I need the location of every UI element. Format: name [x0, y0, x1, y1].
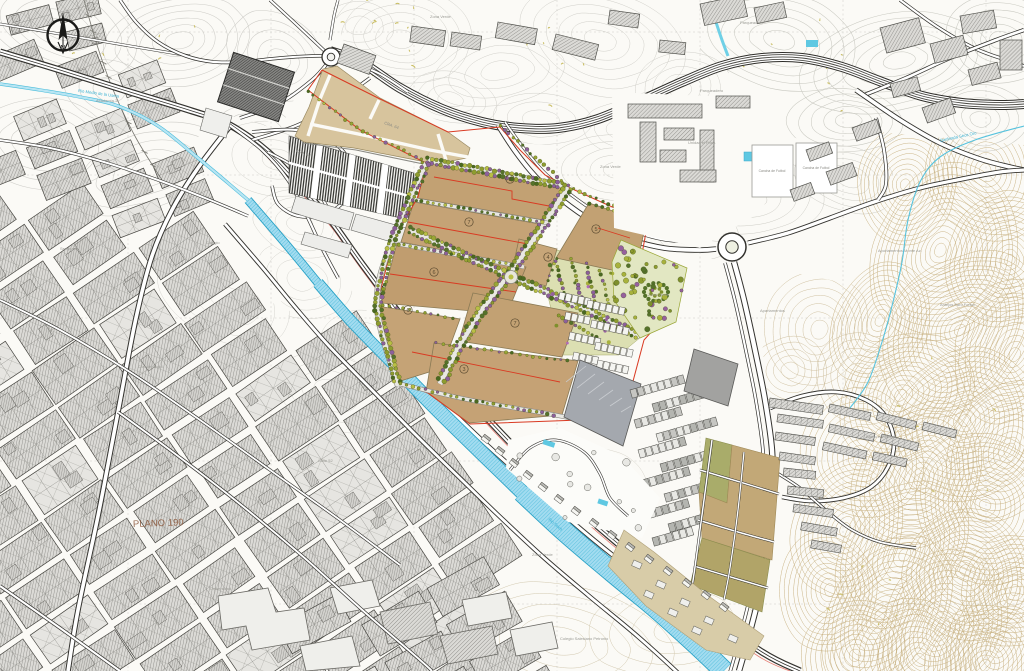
svg-text:6: 6 — [406, 308, 409, 314]
svg-text:PLANO 190: PLANO 190 — [133, 517, 184, 530]
svg-text:Barrio el Refugio: Barrio el Refugio — [866, 434, 897, 439]
svg-text:Zona Verde: Zona Verde — [648, 292, 669, 297]
svg-text:Zona Verde: Zona Verde — [532, 552, 553, 557]
svg-text:7: 7 — [513, 321, 516, 327]
svg-text:Aportamentos Monte Az.: Aportamentos Monte Az. — [878, 248, 922, 253]
svg-text:Parqueadero: Parqueadero — [740, 20, 764, 25]
svg-text:N: N — [60, 45, 65, 52]
svg-text:8: 8 — [508, 177, 511, 183]
svg-text:7: 7 — [467, 220, 470, 226]
svg-text:Calle 52: Calle 52 — [318, 458, 333, 463]
svg-text:6: 6 — [432, 270, 435, 276]
svg-text:Apartamentos: Apartamentos — [760, 308, 785, 313]
svg-text:Colegio: Colegio — [206, 240, 220, 245]
svg-text:Parqueadero: Parqueadero — [700, 88, 724, 93]
svg-text:Cancha de Futbol: Cancha de Futbol — [803, 166, 830, 170]
svg-text:Zona Verde: Zona Verde — [430, 14, 451, 19]
svg-text:3: 3 — [462, 367, 465, 373]
svg-text:Academia T.: Academia T. — [96, 98, 118, 103]
svg-text:Seminario: Seminario — [60, 246, 79, 251]
svg-text:Unidad el Princ.: Unidad el Princ. — [688, 140, 716, 145]
svg-text:5: 5 — [594, 227, 597, 233]
svg-text:4: 4 — [546, 255, 549, 261]
svg-text:Universidad: Universidad — [210, 586, 231, 591]
svg-text:Zona Verde: Zona Verde — [600, 164, 621, 169]
svg-text:Antejos Faro Fortun: Antejos Faro Fortun — [940, 302, 975, 307]
svg-text:Colegio Salesiano Petronio: Colegio Salesiano Petronio — [560, 636, 609, 641]
svg-text:Cra. de Occid.: Cra. de Occid. — [138, 364, 164, 369]
svg-text:Cancha de Futbol: Cancha de Futbol — [759, 169, 786, 173]
